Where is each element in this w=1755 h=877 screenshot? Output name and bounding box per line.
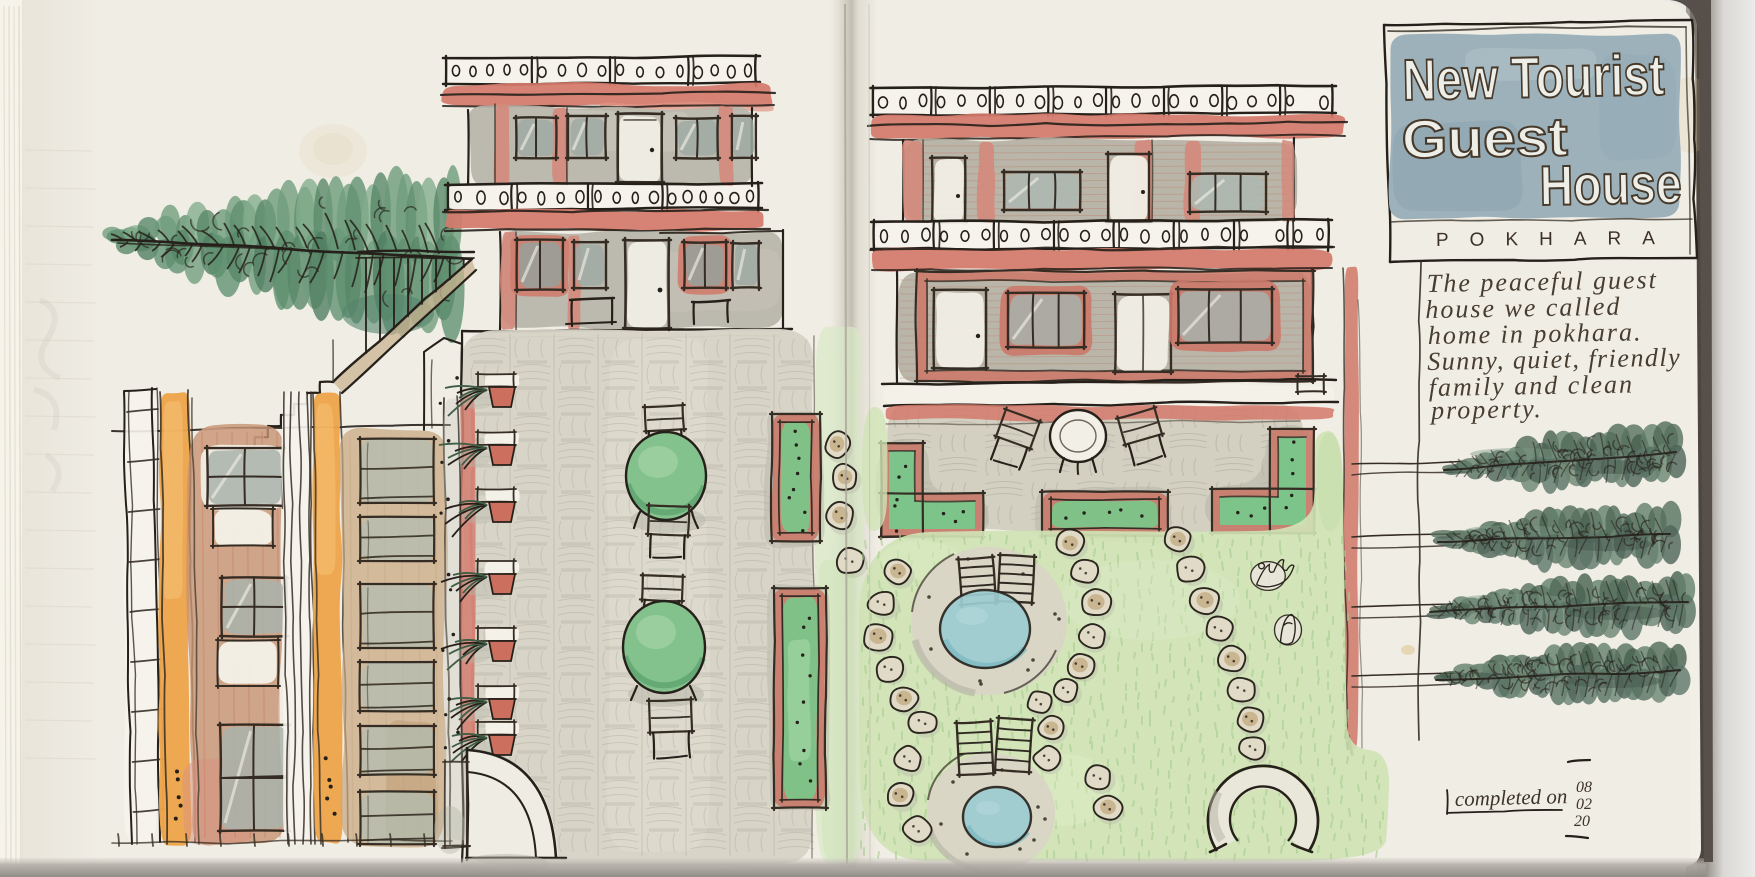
svg-text:House: House [1539,152,1682,217]
svg-text:08: 08 [1576,779,1592,796]
svg-text:02: 02 [1576,796,1592,813]
svg-text:property.: property. [1429,394,1543,425]
svg-text:20: 20 [1574,813,1590,830]
svg-text:New Tourist: New Tourist [1402,43,1665,113]
svg-text:completed on: completed on [1455,784,1568,811]
svg-text:POKHARA: POKHARA [1436,228,1676,251]
